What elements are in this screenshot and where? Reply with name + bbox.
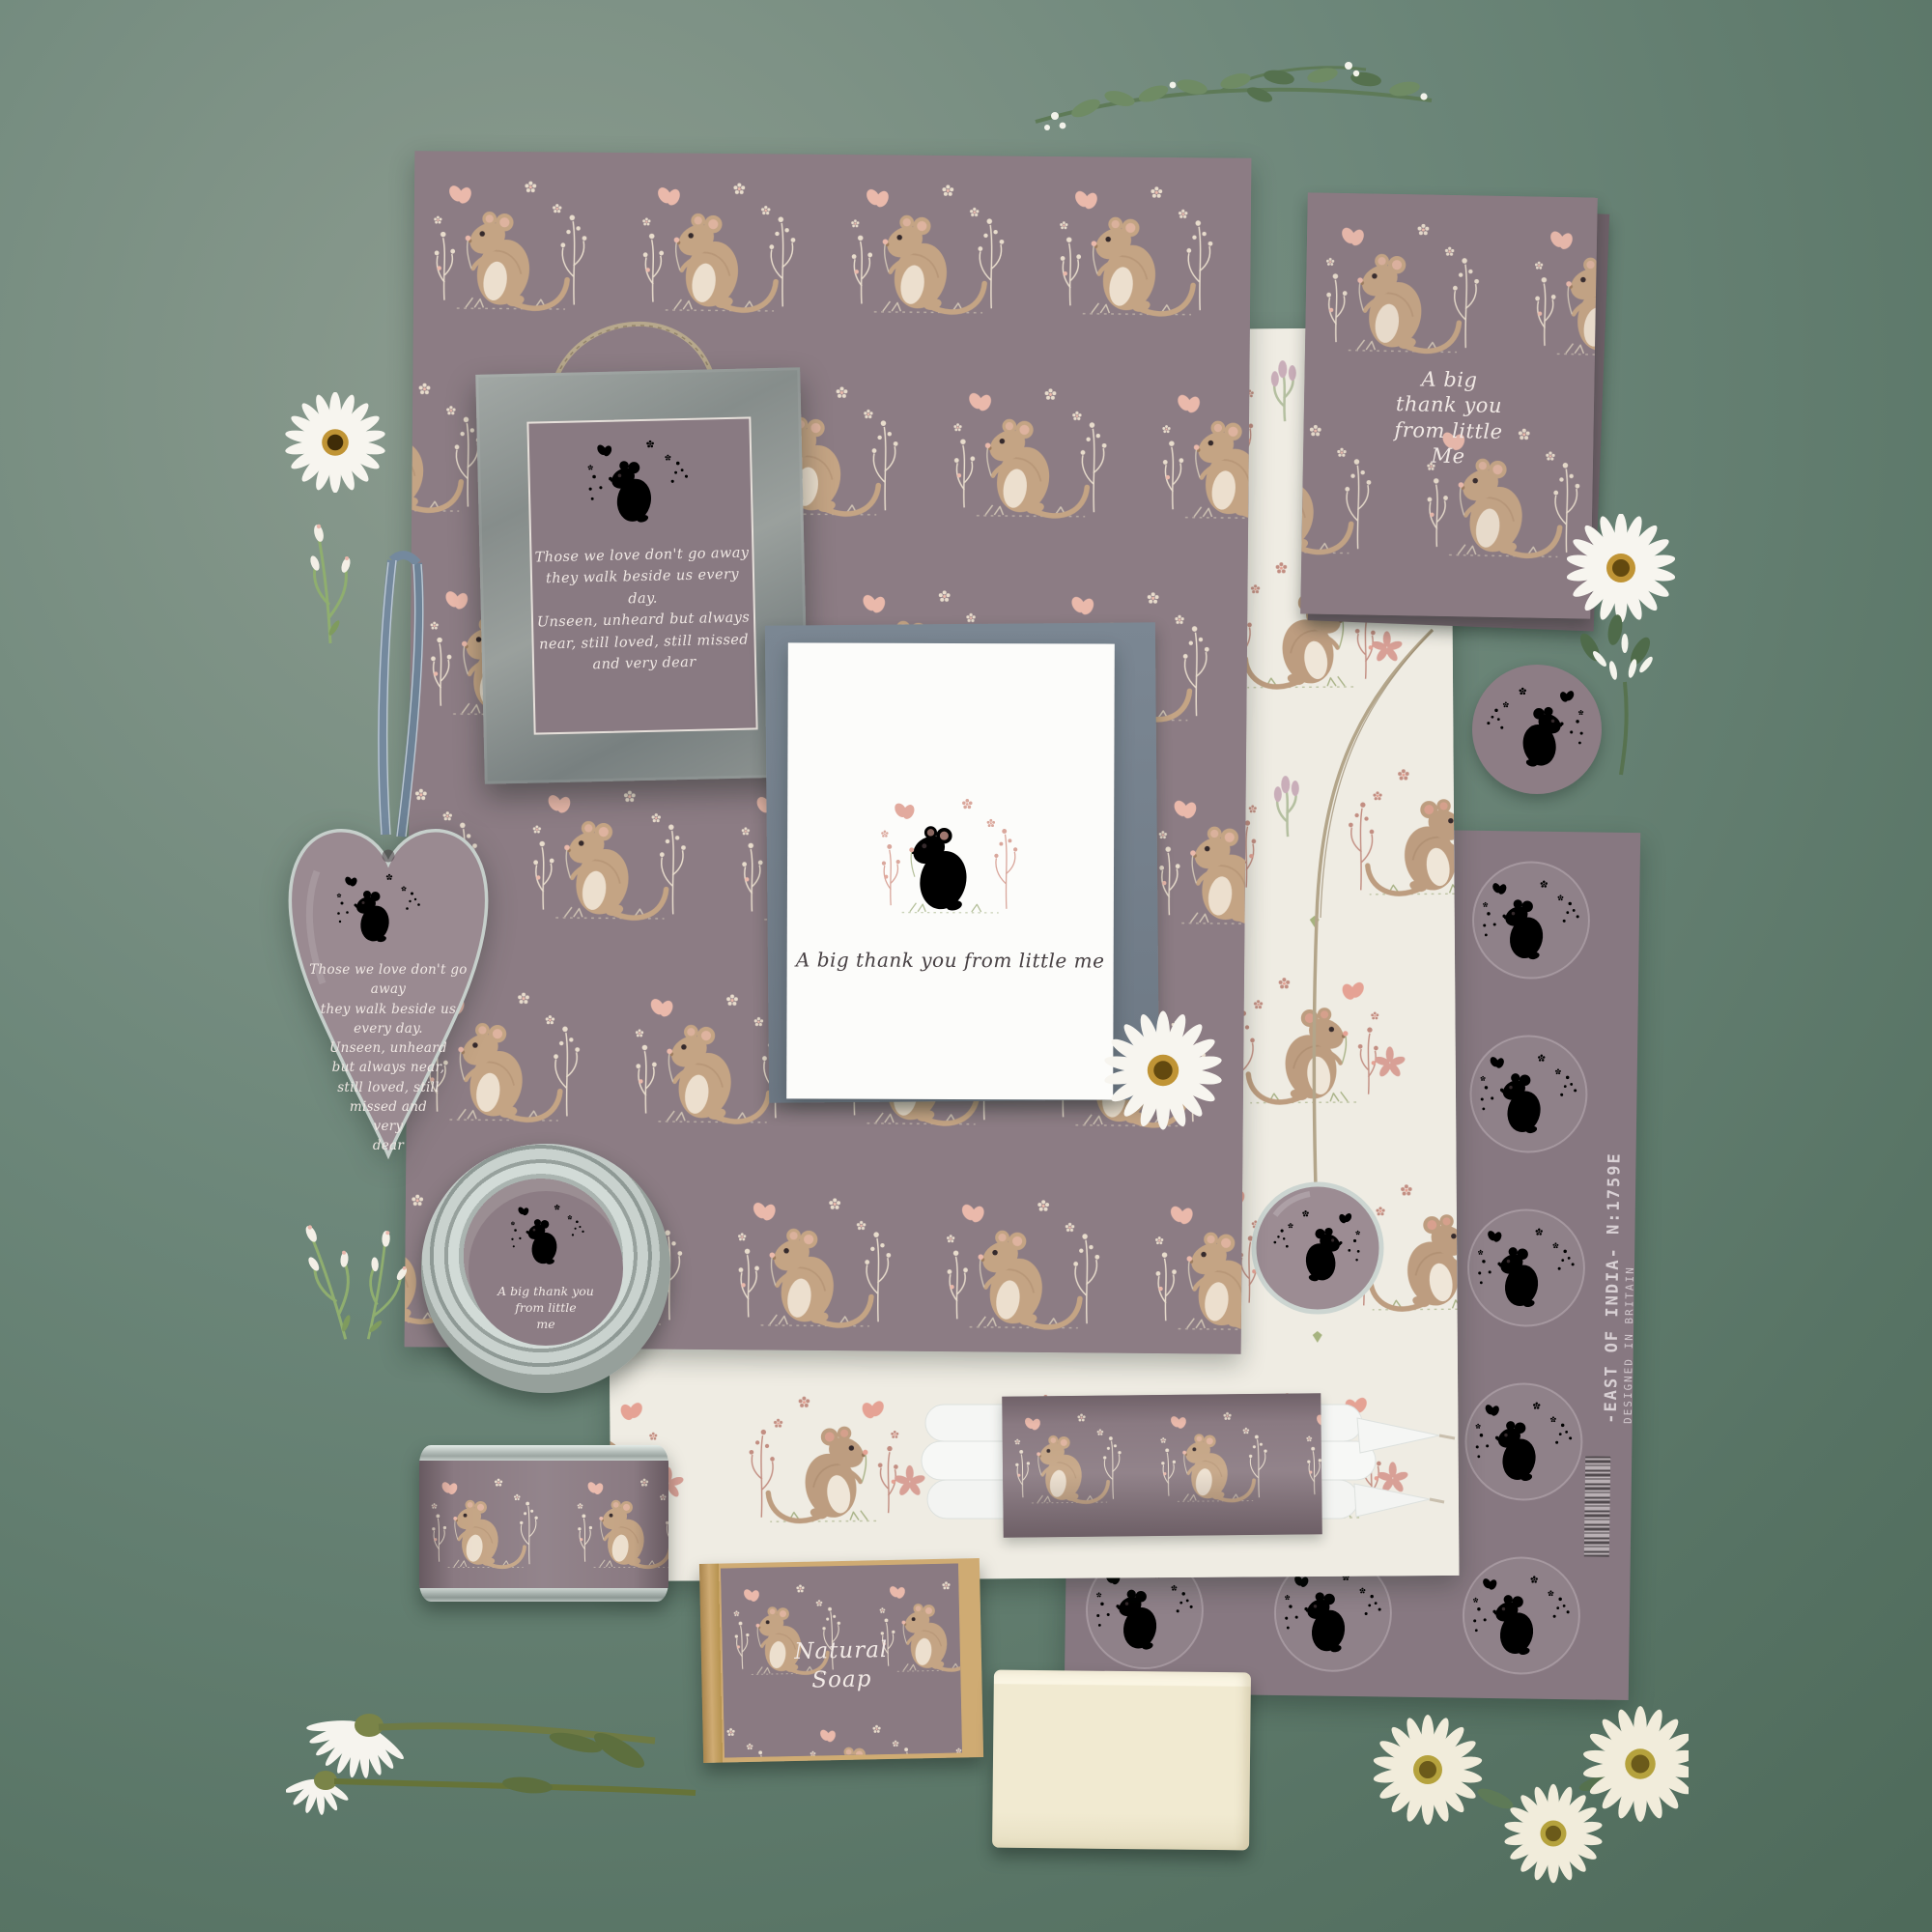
origin-text: DESIGNED IN BRITAIN bbox=[1622, 1134, 1638, 1424]
candle-wrap-band bbox=[1002, 1393, 1322, 1537]
soap-box-label: Natural Soap bbox=[721, 1563, 962, 1757]
verse-text: Those we love don't go away they walk be… bbox=[531, 542, 754, 677]
candle-tin bbox=[419, 1445, 668, 1602]
barcode bbox=[1584, 1456, 1610, 1556]
lid-caption: A big thank you from little me bbox=[469, 1284, 623, 1333]
bud-sprig bbox=[282, 510, 379, 650]
product-code: N:1759E bbox=[1604, 1151, 1624, 1235]
greeting-card: A big thank you from little me bbox=[786, 642, 1115, 1099]
daisy-flower bbox=[1567, 514, 1675, 622]
tin-rim bbox=[419, 1588, 668, 1602]
flower-sprig bbox=[1569, 614, 1675, 779]
soap-box: Natural Soap bbox=[699, 1558, 983, 1763]
heart-ornament: Those we love don't go away they walk be… bbox=[267, 813, 510, 1169]
mouse-illustration bbox=[881, 799, 1018, 914]
daisy-flower bbox=[285, 392, 385, 493]
memorial-print: Those we love don't go away they walk be… bbox=[526, 416, 757, 734]
dried-daisies bbox=[1360, 1702, 1689, 1886]
soap-caption: Natural Soap bbox=[723, 1634, 961, 1697]
notebook-caption: A big thank you from little Me bbox=[1303, 364, 1595, 470]
bud-sprig bbox=[282, 1202, 437, 1371]
twine-string bbox=[1246, 609, 1449, 1198]
eucalyptus-sprig bbox=[1028, 41, 1443, 176]
stemmed-daisies bbox=[286, 1642, 711, 1816]
frame-hanger-twine bbox=[541, 288, 724, 381]
card-caption: A big thank you from little me bbox=[787, 948, 1114, 972]
tin-rim bbox=[419, 1445, 668, 1461]
soap-bar bbox=[992, 1670, 1251, 1851]
brand-text: -EAST OF INDIA- N:1759E DESIGNED IN BRIT… bbox=[1602, 1134, 1640, 1424]
brand-name: -EAST OF INDIA- bbox=[1602, 1246, 1624, 1424]
heart-verse: Those we love don't go away they walk be… bbox=[301, 960, 475, 1156]
mouse-illustration bbox=[511, 1205, 584, 1266]
framed-print: Those we love don't go away they walk be… bbox=[475, 367, 810, 784]
lid-label: A big thank you from little me bbox=[469, 1191, 623, 1346]
daisy-flower bbox=[1103, 1010, 1223, 1130]
glass-circle-ornament bbox=[1250, 1180, 1385, 1316]
notebook: A big thank you from little Me bbox=[1300, 192, 1598, 618]
flatlay-photo: { "palette": { "background_green": "#5e7… bbox=[0, 0, 1932, 1932]
tin-label bbox=[419, 1461, 668, 1588]
jar-lid: A big thank you from little me bbox=[421, 1144, 670, 1393]
mouse-illustration bbox=[587, 440, 689, 526]
